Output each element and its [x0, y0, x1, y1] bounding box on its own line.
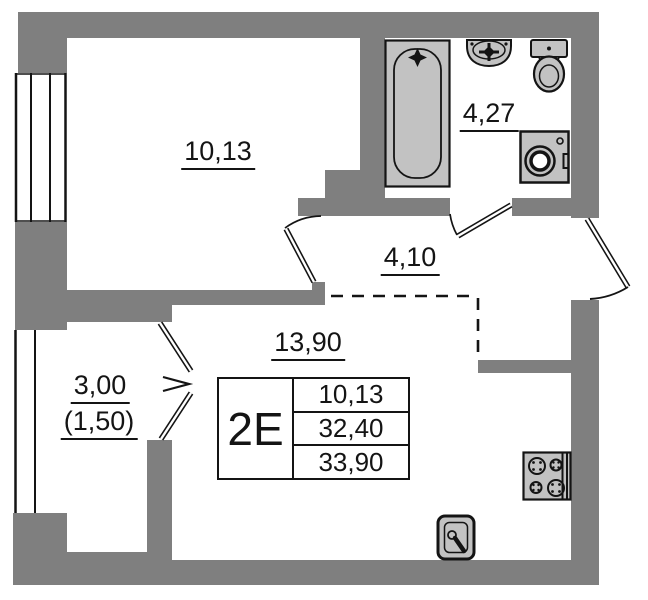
- toilet-icon: [531, 40, 567, 92]
- plan-overlay: [0, 0, 648, 600]
- bathtub-icon: [386, 41, 450, 187]
- stove-icon: [524, 453, 571, 500]
- bathroom-door: [450, 205, 511, 236]
- balcony-area-label: 3,00: [71, 371, 130, 404]
- entrance-door: [587, 219, 628, 299]
- bedroom-area-label: 10,13: [181, 137, 255, 170]
- living-kitchen-area-label: 13,90: [271, 328, 345, 361]
- balcony-window: [16, 330, 36, 513]
- unit-legend-table: 2E 10,13 32,40 33,90: [217, 377, 410, 480]
- balcony-french-door: [160, 323, 191, 439]
- kitchen-zone-divider: [331, 296, 478, 361]
- unit-legend-values: 10,13 32,40 33,90: [294, 379, 408, 478]
- kitchen-sink-icon: [438, 516, 474, 559]
- legend-reduced-area: 32,40: [294, 413, 408, 447]
- bathroom-sink-icon: [467, 40, 511, 66]
- floor-plan: 10,13 4,27 4,10 13,90 3,00 (1,50) 2E 10,…: [0, 0, 648, 600]
- hallway-area-label: 4,10: [381, 243, 440, 276]
- legend-total-area: 33,90: [294, 446, 408, 478]
- balcony-coefficient-label: (1,50): [61, 407, 138, 440]
- bathroom-area-label: 4,27: [460, 99, 519, 132]
- washing-machine-icon: [521, 132, 569, 183]
- legend-living-area: 10,13: [294, 379, 408, 413]
- bedroom-door: [285, 216, 321, 282]
- bedroom-window: [15, 73, 66, 222]
- unit-type-label: 2E: [219, 379, 294, 478]
